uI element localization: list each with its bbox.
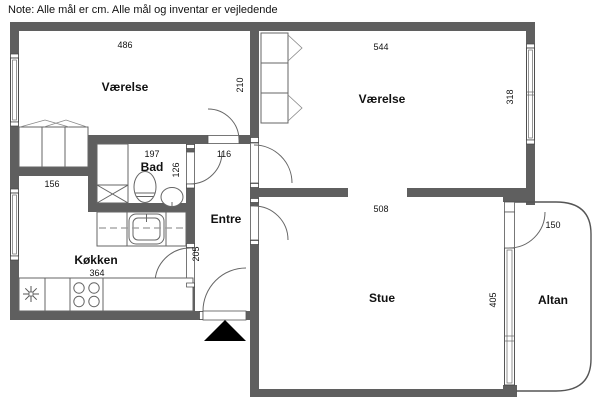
toilet	[134, 172, 156, 203]
dim-altan-width: 150	[545, 220, 560, 230]
floorplan-canvas: Note: Alle mål er cm. Alle mål og invent…	[0, 0, 600, 409]
dim-koekken-width: 364	[89, 268, 104, 278]
door-leaf-altan	[505, 212, 515, 248]
dim-stue-depth: 405	[488, 292, 498, 307]
dim-kitchen-nook: 156	[44, 179, 59, 189]
wall-cap	[187, 145, 195, 149]
dim-bad-width: 197	[144, 149, 159, 159]
stove-burner	[74, 296, 84, 306]
wall-bad-top	[88, 135, 208, 144]
note-text: Note: Alle mål er cm. Alle mål og invent…	[8, 4, 278, 16]
stove-burner	[89, 283, 99, 293]
wall-cap	[251, 138, 259, 143]
entrance-jamb	[200, 312, 204, 320]
stove-burner	[74, 283, 84, 293]
room-label-bad: Bad	[141, 160, 164, 174]
door-leaf-bedroom-left	[208, 136, 239, 144]
window-cap	[11, 54, 19, 58]
wall-entre-stue	[250, 240, 259, 397]
wall-bad-left	[88, 144, 97, 212]
dim-entre-width: 116	[217, 149, 231, 159]
wardrobe-door-swing	[288, 95, 302, 121]
floorplan-page: Note: Alle mål er cm. Alle mål og invent…	[0, 0, 600, 409]
room-label-vaerelse-left: Værelse	[102, 80, 149, 94]
wall-cap	[251, 241, 259, 245]
wardrobe-door-swing	[288, 35, 302, 61]
wardrobe-left-bedroom	[19, 127, 88, 167]
window-cap	[11, 122, 19, 126]
door-leaf-bad	[187, 152, 195, 184]
dim-bad-depth: 126	[171, 162, 181, 177]
window-cap	[527, 140, 535, 144]
window-left-kitchen	[11, 193, 19, 256]
window-stue-altan	[505, 248, 515, 385]
dim-vaerelse-right-width: 544	[373, 42, 388, 52]
wall-kitchen-right-mid	[186, 184, 195, 248]
door-swing-entrance	[203, 268, 246, 311]
wall-vaerelse-right-bottom-a	[259, 188, 348, 197]
wardrobe-right-bedroom	[261, 33, 288, 123]
window-cap	[11, 189, 19, 193]
altan-door-jamb	[505, 202, 515, 212]
entrance-arrow-icon	[204, 320, 246, 341]
door-leaf-entrance	[203, 311, 246, 320]
wall-kitchen-nook	[10, 167, 97, 176]
room-label-altan: Altan	[538, 293, 568, 307]
wall-bad-top-right-stub	[239, 135, 250, 144]
wall-stue-bottom	[250, 389, 517, 397]
wall-bottom-kitchen	[19, 311, 203, 320]
wall-cap	[187, 184, 195, 188]
room-label-entre: Entre	[211, 212, 242, 226]
window-cap	[527, 44, 535, 48]
window-left-bedroom	[11, 58, 19, 122]
wall-bedroom-divider	[250, 31, 259, 143]
stove-burner	[89, 296, 99, 306]
dim-vaerelse-right-depth: 318	[505, 89, 515, 104]
dim-vaerelse-left-width: 486	[117, 40, 132, 50]
dim-divider-wall: 210	[235, 77, 245, 92]
room-label-stue: Stue	[369, 291, 395, 305]
door-leaf-bedroom-right	[251, 143, 259, 183]
door-leaf-stue	[251, 206, 259, 240]
dim-kitchen-door-wall: 205	[191, 246, 201, 261]
wall-cap	[187, 283, 195, 287]
room-label-koekken: Køkken	[74, 253, 117, 267]
wall-stue-ne-block	[503, 188, 535, 202]
wall-cap	[251, 184, 259, 188]
wall-cap	[251, 199, 259, 203]
floor-drain-icon	[23, 286, 39, 302]
wall-top	[10, 22, 535, 31]
door-swing-bedroom-right	[254, 145, 292, 183]
wall-stue-se-post	[503, 385, 517, 397]
door-swing-stue	[254, 206, 288, 240]
window-cap	[11, 256, 19, 260]
window-right-bedroom	[527, 48, 535, 140]
dim-stue-width: 508	[373, 204, 388, 214]
room-label-vaerelse-right: Værelse	[359, 92, 406, 106]
